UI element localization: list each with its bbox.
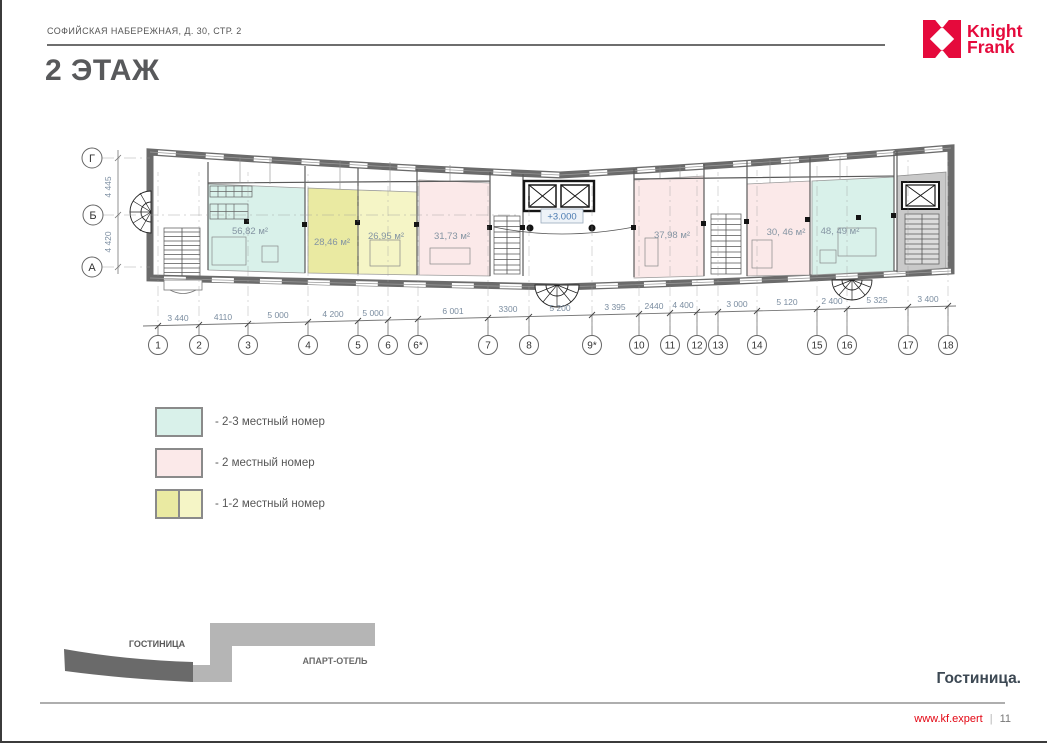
legend-swatch-yellow-split <box>155 489 203 519</box>
axis-6: 6 <box>385 341 391 352</box>
area-label-1: 56,82 м² <box>232 226 268 237</box>
footer: www.kf.expert|11 <box>914 713 1011 725</box>
axis-2: 2 <box>196 341 202 352</box>
area-label-5: 37,98 м² <box>654 230 690 241</box>
area-label-7: 48, 49 м² <box>821 226 860 237</box>
dim-13: 2 400 <box>821 296 843 306</box>
knight-frank-logo: Knight Frank <box>923 20 1022 58</box>
dim-15: 3 400 <box>917 294 939 304</box>
area-label-4: 31,73 м² <box>434 231 470 242</box>
knight-frank-logo-text: Knight Frank <box>967 23 1022 55</box>
room-1-2-bed-1 <box>308 188 358 274</box>
dim-5: 6 001 <box>442 306 464 316</box>
dim-7: 5 200 <box>549 303 571 313</box>
vdim-1: 4 445 <box>103 176 113 198</box>
row-axis-markers <box>82 148 121 277</box>
elevator-shafts-center <box>524 181 594 211</box>
legend-swatch-teal <box>155 407 203 437</box>
floor-plan: +3.000 56,82 м² 28,46 м² 26,95 м² 31,73 … <box>55 125 975 375</box>
elevator-shaft-right <box>902 182 939 209</box>
area-label-3: 26,95 м² <box>368 231 404 242</box>
axis-18: 18 <box>942 341 954 352</box>
row-axis-g: Г <box>89 153 95 165</box>
legend-item-2-bed: - 2 местный номер <box>155 448 325 478</box>
axis-16: 16 <box>841 341 853 352</box>
legend-item-1-2-bed: - 1-2 местный номер <box>155 489 325 519</box>
vertical-dimension-labels: 4 445 4 420 <box>103 176 113 253</box>
axis-12: 12 <box>691 341 703 352</box>
column-axis-labels: 1 2 3 4 5 6 6* 7 8 9* 10 11 12 13 14 15 … <box>155 341 954 352</box>
axis-8: 8 <box>526 341 532 352</box>
elevation-label: +3.000 <box>547 212 576 223</box>
dim-0: 3 440 <box>167 313 189 323</box>
axis-4: 4 <box>305 341 311 352</box>
axis-1: 1 <box>155 341 161 352</box>
fan-left-wall <box>130 191 151 233</box>
axis-15: 15 <box>811 341 823 352</box>
axis-6s: 6* <box>413 341 423 352</box>
legend-swatch-pink <box>155 448 203 478</box>
area-label-2: 28,46 м² <box>314 237 350 248</box>
axis-11: 11 <box>665 341 676 352</box>
dim-8: 3 395 <box>604 302 626 312</box>
axis-7: 7 <box>485 341 491 352</box>
dim-11: 3 000 <box>726 299 748 309</box>
site-diagram: ГОСТИНИЦА АПАРТ-ОТЕЛЬ <box>50 610 390 705</box>
row-axis-a: А <box>88 262 96 274</box>
axis-5: 5 <box>355 341 361 352</box>
apart-hotel-shape-label: АПАРТ-ОТЕЛЬ <box>302 656 368 666</box>
row-axis-labels: Г Б А <box>88 153 96 274</box>
dim-10: 4 400 <box>672 300 694 310</box>
dim-4: 5 000 <box>362 308 384 318</box>
dim-14: 5 325 <box>866 295 888 305</box>
header-divider <box>47 44 885 46</box>
section-caption: Гостиница. <box>936 670 1021 688</box>
hotel-shape <box>64 649 193 682</box>
footer-website-link[interactable]: www.kf.expert <box>914 713 982 725</box>
elevation-mark: +3.000 <box>541 209 583 223</box>
floor-plan-drawing: +3.000 56,82 м² 28,46 м² 26,95 м² 31,73 … <box>55 125 975 370</box>
dim-2: 5 000 <box>267 310 289 320</box>
dim-9: 2440 <box>645 301 664 311</box>
legend-item-2-3-bed: - 2-3 местный номер <box>155 407 325 437</box>
logo-word-frank: Frank <box>967 39 1022 55</box>
page-edge-left <box>0 0 2 743</box>
dim-3: 4 200 <box>322 309 344 319</box>
dim-6: 3300 <box>499 304 518 314</box>
row-axis-b: Б <box>89 210 96 222</box>
address-line: СОФИЙСКАЯ НАБЕРЕЖНАЯ, Д. 30, СТР. 2 <box>47 26 242 36</box>
axis-17: 17 <box>902 341 914 352</box>
legend-label-1-2-bed: - 1-2 местный номер <box>215 498 325 510</box>
legend: - 2-3 местный номер - 2 местный номер - … <box>155 407 325 530</box>
page-title: 2 ЭТАЖ <box>45 54 160 88</box>
footer-page-number: 11 <box>1000 713 1011 725</box>
stairs-service-core <box>905 214 939 264</box>
brochure-page: { "page": { "address_line": "СОФИЙСКАЯ Н… <box>0 0 1047 743</box>
vdim-2: 4 420 <box>103 231 113 253</box>
apart-hotel-shape <box>190 623 375 682</box>
dim-1: 4110 <box>214 312 233 322</box>
hotel-shape-label: ГОСТИНИЦА <box>129 639 186 649</box>
room-2-bed-1 <box>419 180 490 276</box>
room-2-bed-2 <box>634 176 704 278</box>
footer-separator: | <box>990 713 993 725</box>
footer-divider <box>40 702 1005 704</box>
area-label-6: 30, 46 м² <box>767 227 806 238</box>
knight-frank-logo-icon <box>923 20 961 58</box>
axis-3: 3 <box>245 341 251 352</box>
axis-13: 13 <box>712 341 724 352</box>
axis-10: 10 <box>633 341 645 352</box>
axis-9s: 9* <box>587 341 597 352</box>
site-diagram-drawing: ГОСТИНИЦА АПАРТ-ОТЕЛЬ <box>50 610 390 700</box>
axis-14: 14 <box>751 341 763 352</box>
legend-label-2-3-bed: - 2-3 местный номер <box>215 416 325 428</box>
column-axis-markers <box>149 336 958 355</box>
legend-label-2-bed: - 2 местный номер <box>215 457 315 469</box>
dim-12: 5 120 <box>776 297 798 307</box>
